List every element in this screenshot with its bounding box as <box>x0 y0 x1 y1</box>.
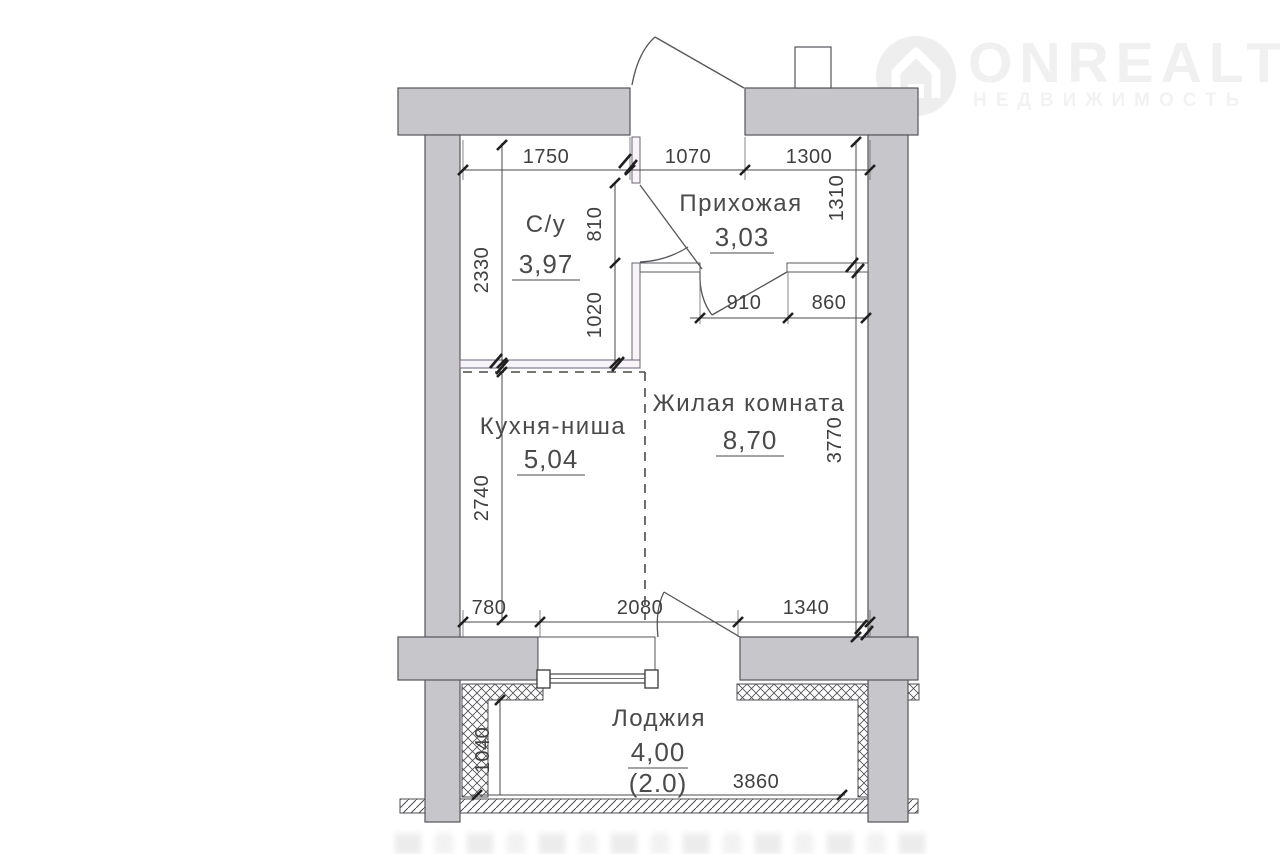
room-hallway-name: Прихожая <box>679 190 802 217</box>
dimension-ticks <box>458 137 875 800</box>
dim-hall-wall: 860 <box>812 292 847 314</box>
dim-top-mid: 1070 <box>665 146 712 168</box>
dim-bath-height: 2330 <box>471 247 493 294</box>
room-labels: С/у 3,97 Прихожая 3,03 Кухня-ниша 5,04 Ж… <box>480 190 846 798</box>
room-bathroom-area: 3,97 <box>519 249 574 279</box>
dim-loggia-width: 3860 <box>733 771 780 793</box>
kitchen-window <box>537 637 658 688</box>
dim-bottom-mid: 2080 <box>617 597 664 619</box>
room-label-bathroom: С/у 3,97 <box>512 211 580 280</box>
wall-left <box>425 135 460 822</box>
window-jamb-left <box>537 670 550 688</box>
wall-top-right <box>745 88 918 135</box>
dim-kitchen-left: 2740 <box>471 475 493 522</box>
room-living-area: 8,70 <box>723 425 778 455</box>
floor-plan-page: ONREALT НЕДВИЖИМОСТЬ <box>0 0 1280 854</box>
wall-top-left <box>398 88 630 135</box>
room-loggia-name: Лоджия <box>612 705 706 732</box>
floor-plan-drawing: 1750 1070 1300 2330 810 1020 1310 910 86… <box>0 0 1280 854</box>
dim-top-left: 1750 <box>523 146 570 168</box>
extension-lines <box>463 137 870 637</box>
vent-shaft-block <box>795 47 831 88</box>
room-label-loggia: Лоджия 4,00 (2.0) <box>612 705 706 798</box>
room-label-hallway: Прихожая 3,03 <box>679 190 802 253</box>
loggia-glazing-strip <box>400 799 918 813</box>
room-bathroom-name: С/у <box>526 211 567 238</box>
room-loggia-area-coeff: (2.0) <box>629 768 687 798</box>
dim-bottom-left: 780 <box>472 597 507 619</box>
dim-loggia-left: 1040 <box>472 727 494 774</box>
dim-bath-door: 810 <box>584 207 606 242</box>
room-kitchen-area: 5,04 <box>524 444 579 474</box>
wall-bottom-left <box>398 637 538 680</box>
dim-hall-right: 1310 <box>826 175 848 222</box>
dim-hall-door: 910 <box>727 292 762 314</box>
bathroom-wall-lower <box>632 263 640 368</box>
entrance-door <box>632 37 744 88</box>
dim-living-right: 3770 <box>824 417 846 464</box>
watermark-artifact-strip <box>395 833 925 854</box>
room-kitchen-name: Кухня-ниша <box>480 413 626 440</box>
hallway-wall-left <box>640 263 700 272</box>
dim-bottom-right: 1340 <box>783 597 830 619</box>
dim-bath-wall: 1020 <box>584 292 606 339</box>
balcony-door <box>657 592 740 637</box>
room-label-living: Жилая комната 8,70 <box>653 390 846 456</box>
wall-right <box>868 135 908 822</box>
dim-top-right: 1300 <box>786 146 833 168</box>
room-loggia-area: 4,00 <box>631 737 686 767</box>
window-jamb-right <box>645 670 658 688</box>
wall-bottom-right <box>740 637 918 680</box>
room-living-name: Жилая комната <box>653 390 846 417</box>
room-hallway-area: 3,03 <box>715 222 770 252</box>
